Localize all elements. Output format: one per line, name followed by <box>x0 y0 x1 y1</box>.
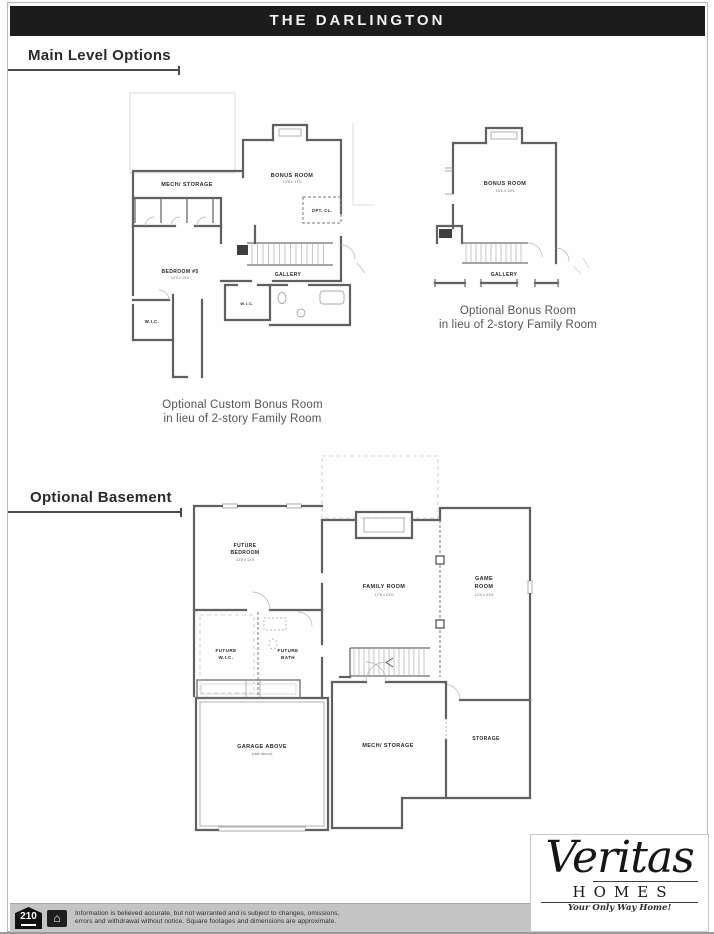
room-label-future-bedroom-l2: BEDROOM <box>231 550 260 556</box>
room-label-bonus-room-2: BONUS ROOM <box>484 181 527 187</box>
room-label-game-room-l1: GAME <box>475 576 493 582</box>
room-label-future-wic-l1: FUTURE <box>215 648 236 653</box>
room-dims-game-room: 12'4 x 21'6 <box>474 592 494 597</box>
disclaimer-line1: Information is believed accurate, but no… <box>75 910 339 919</box>
room-label-opt-cl: OPT. CL. <box>312 208 332 213</box>
brochure-page: THE DARLINGTON Main Level Options <box>0 0 714 934</box>
caption-custom-bonus-line1: Optional Custom Bonus Room <box>125 398 360 412</box>
room-label-mech-storage: MECH/ STORAGE <box>161 182 213 188</box>
caption-custom-bonus: Optional Custom Bonus Room in lieu of 2-… <box>125 398 360 426</box>
room-dims-bonus-room: 13'6 x 17'0 <box>282 179 302 184</box>
caption-bonus-line2: in lieu of 2-story Family Room <box>418 318 618 332</box>
room-label-garage-above: GARAGE ABOVE <box>237 744 287 750</box>
room-label-future-bath-l1: FUTURE <box>277 648 298 653</box>
logo-homes-text: HOMES <box>539 882 708 902</box>
room-dims-future-bedroom: 12'8 x 13'0 <box>236 558 254 562</box>
room-dims-bonus-room-2: 15'6 x 19'4 <box>495 188 515 193</box>
badge-210-bar <box>21 924 36 926</box>
plan-custom-bonus-drawing: MECH/ STORAGE BONUS ROOM 13'6 x 17'0 OPT… <box>125 85 375 395</box>
footer-disclaimer-bar: 210 ⌂ Information is believed accurate, … <box>10 903 530 933</box>
badge-210-number: 210 <box>20 911 37 922</box>
room-label-wic-left: W.I.C. <box>145 319 160 324</box>
room-label-future-bedroom-l1: FUTURE <box>234 543 257 549</box>
caption-bonus: Optional Bonus Room in lieu of 2-story F… <box>418 304 618 332</box>
room-label-family-room: FAMILY ROOM <box>363 584 406 590</box>
caption-custom-bonus-line2: in lieu of 2-story Family Room <box>125 412 360 426</box>
optional-basement-heading: Optional Basement <box>30 489 172 506</box>
main-level-options-heading: Main Level Options <box>28 47 171 64</box>
room-label-future-wic-l2: W.I.C. <box>219 655 234 660</box>
room-sub-garage-above: (slab above) <box>252 752 274 756</box>
room-label-game-room-l2: ROOM <box>475 584 494 590</box>
room-dims-bedroom5: 12'0 x 13'6 <box>171 276 189 280</box>
basement-underline-tick <box>180 508 182 517</box>
plan-bonus-drawing: BONUS ROOM 15'6 x 19'4 GALLERY <box>425 108 615 303</box>
room-label-future-bath-l2: BATH <box>281 655 295 660</box>
badge-210-icon: 210 <box>15 907 42 929</box>
room-dims-family-room: 17'8 x 21'0 <box>374 592 394 597</box>
room-label-wic-center: W.I.C. <box>240 301 253 306</box>
plan2-walls <box>435 128 589 287</box>
logo-veritas-script: Veritas <box>531 835 708 881</box>
room-label-storage: STORAGE <box>472 736 500 742</box>
caption-bonus-line1: Optional Bonus Room <box>418 304 618 318</box>
main-level-underline <box>8 69 178 71</box>
plan1-faint-lines <box>130 93 373 205</box>
disclaimer-text: Information is believed accurate, but no… <box>75 910 339 927</box>
logo-tagline: Your Only Way Home! <box>531 903 708 914</box>
room-label-mech-storage-basement: MECH/ STORAGE <box>362 743 414 749</box>
page-title: THE DARLINGTON <box>10 6 705 36</box>
room-label-gallery-2: GALLERY <box>491 272 518 278</box>
basement-underline <box>8 511 180 513</box>
basement-faint <box>322 456 438 518</box>
plan-basement-drawing: FUTURE BEDROOM 12'8 x 13'0 FAMILY ROOM 1… <box>188 452 538 837</box>
plan1-walls <box>133 125 365 377</box>
main-level-underline-tick <box>178 66 180 75</box>
veritas-homes-logo: Veritas HOMES Your Only Way Home! <box>530 834 709 932</box>
realtor-house-icon: ⌂ <box>47 910 67 927</box>
room-label-bedroom5: BEDROOM #5 <box>161 269 198 275</box>
room-label-gallery: GALLERY <box>275 272 302 278</box>
disclaimer-line2: errors and withdrawal without notice. Sq… <box>75 918 339 927</box>
